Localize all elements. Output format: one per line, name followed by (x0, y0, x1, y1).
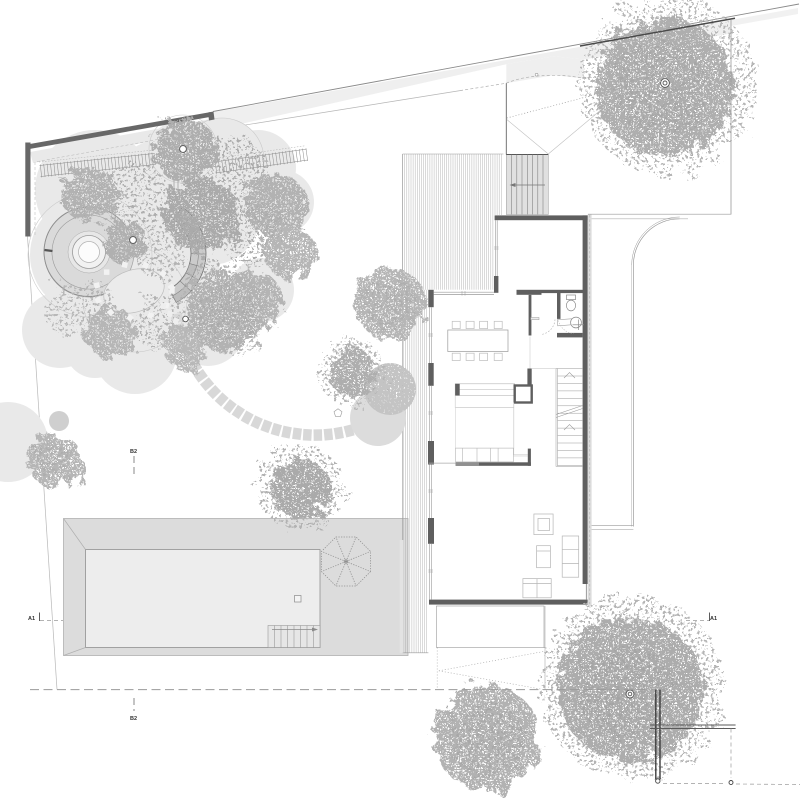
svg-text:A1: A1 (710, 616, 717, 622)
svg-text:B2: B2 (130, 716, 137, 722)
svg-text:A1: A1 (28, 616, 35, 622)
svg-text:B2: B2 (130, 449, 137, 455)
